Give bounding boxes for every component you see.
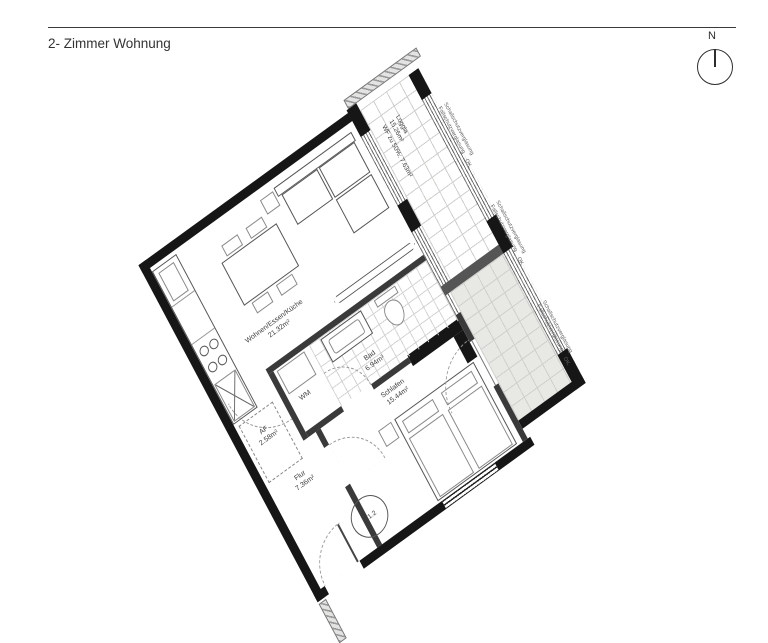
dining-table (221, 223, 299, 306)
unit-number: 1.1.2 (362, 509, 378, 523)
north-needle-icon (714, 49, 716, 67)
room-area: 21.32m² (237, 296, 323, 362)
nightstand (378, 422, 399, 447)
hatched-party-wall-stub (319, 599, 347, 643)
north-label: N (708, 30, 716, 42)
north-indicator: N (690, 28, 750, 98)
wall-flur-schlafen (316, 428, 329, 448)
header-rule (48, 27, 736, 28)
page-title: 2- Zimmer Wohnung (48, 36, 171, 51)
door-swing-arc-flur-schlafen (329, 419, 385, 484)
wall-bad-flur (306, 406, 344, 437)
